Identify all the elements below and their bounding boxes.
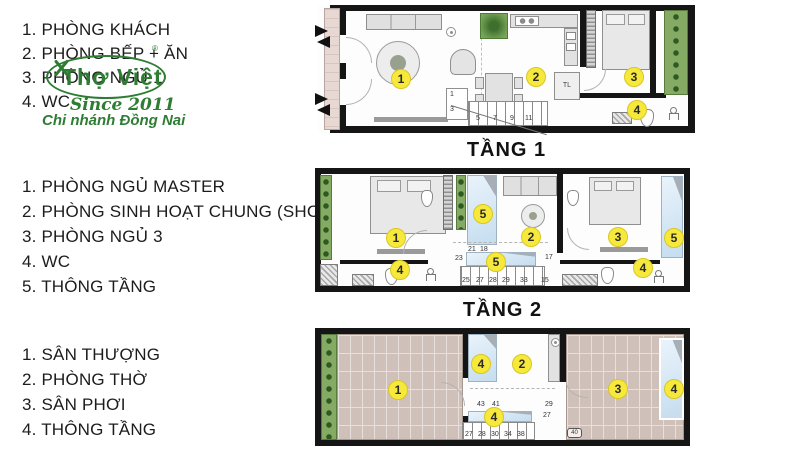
stair-number: 7 <box>493 115 497 123</box>
stair-number: 21 <box>468 246 476 254</box>
logo-name: Thợ Việt <box>62 64 163 91</box>
side-garden <box>664 10 688 95</box>
void-badge: 4 <box>664 379 684 399</box>
wall <box>340 5 346 35</box>
room-badge-dining: 2 <box>526 67 546 87</box>
stair-number: 34 <box>504 431 512 439</box>
vanity <box>562 274 598 286</box>
stair-number: 17 <box>545 254 553 262</box>
sink-icon <box>566 32 576 40</box>
wall <box>340 260 428 264</box>
legend-floor2-item-5: 5. THÔNG TẦNG <box>22 274 325 299</box>
stair-number: 15 <box>541 277 549 285</box>
room-badge-laundry: 3 <box>608 379 628 399</box>
void-badge: 4 <box>484 407 504 427</box>
wardrobe <box>443 175 453 230</box>
door-arc <box>346 37 372 63</box>
shower-icon <box>425 268 435 282</box>
void-badge: 5 <box>664 228 684 248</box>
shower-icon <box>668 107 678 121</box>
chair <box>514 77 523 89</box>
room-badge-altar: 2 <box>512 354 532 374</box>
wall <box>315 168 690 174</box>
legend-floor2-item-3: 3. PHÒNG NGỦ 3 <box>22 224 325 249</box>
shower-icon <box>653 270 663 284</box>
chair <box>475 77 484 89</box>
logo-branch: Chi nhánh Đồng Nai <box>42 112 185 129</box>
wall <box>340 63 346 79</box>
floor-plan-1: 1 TL 2 1 3 5 7 9 11 3 4 <box>318 5 695 133</box>
round-rug <box>521 204 545 228</box>
room-badge-bedroom3: 3 <box>608 227 628 247</box>
room-badge-wc: 4 <box>627 100 647 120</box>
door-arc <box>346 79 372 105</box>
pillow <box>606 14 625 25</box>
toilet-icon <box>567 190 579 206</box>
plant-icon <box>529 212 538 221</box>
wall <box>684 328 690 446</box>
legend-floor1-item-1: 1. PHÒNG KHÁCH <box>22 18 188 42</box>
legend-floor2: 1. PHÒNG NGỦ MASTER 2. PHÒNG SINH HOẠT C… <box>22 174 325 299</box>
room-badge-wc-left: 4 <box>390 260 410 280</box>
floor-plan-2: 1 5 2 3 5 4 23 21 18 17 5 25 27 28 29 33… <box>315 168 690 292</box>
registered-mark-icon: ® <box>152 44 158 53</box>
door-arc <box>567 228 589 250</box>
planter <box>321 334 337 440</box>
bed <box>589 177 641 225</box>
stair-number: 18 <box>480 246 488 254</box>
legend-floor3-item-4: 4. THÔNG TẦNG <box>22 417 160 442</box>
floor-lamp-icon <box>446 27 456 37</box>
stair-number: 3 <box>450 106 454 114</box>
stair-number: 5 <box>476 115 480 123</box>
stair-number: 38 <box>517 431 525 439</box>
stove-icon <box>515 16 539 26</box>
room-badge-terrace: 1 <box>388 380 408 400</box>
legend-floor2-item-4: 4. WC <box>22 249 325 274</box>
bed <box>602 10 650 70</box>
wall <box>340 105 346 133</box>
dresser <box>600 247 648 252</box>
plant-icon <box>480 13 508 39</box>
wall <box>557 168 563 253</box>
room-badge-wc-right: 4 <box>633 258 653 278</box>
gate-symbol-icon <box>314 93 330 117</box>
gate-symbol-icon <box>314 25 330 49</box>
pillow <box>377 180 401 192</box>
planter <box>320 175 332 260</box>
tv-cabinet <box>374 117 448 122</box>
stair-number: 28 <box>489 277 497 285</box>
legend-floor3-item-3: 3. SÂN PHƠI <box>22 392 160 417</box>
stair-number: 30 <box>491 431 499 439</box>
stair-number: 27 <box>476 277 484 285</box>
stair-number: 43 <box>477 401 485 409</box>
wall <box>315 286 690 292</box>
washer <box>352 274 374 286</box>
wardrobe <box>586 10 596 68</box>
wall <box>688 5 695 133</box>
void-badge: 5 <box>473 204 493 224</box>
stair-number: 29 <box>545 401 553 409</box>
void-badge: 5 <box>486 252 506 272</box>
pillow <box>616 181 634 191</box>
sofa <box>503 176 557 196</box>
fridge: TL <box>554 72 580 100</box>
room-badge-living: 1 <box>391 69 411 89</box>
legend-floor2-item-1: 1. PHÒNG NGỦ MASTER <box>22 174 325 199</box>
stair-number: 23 <box>455 255 463 263</box>
legend-floor3-item-2: 2. PHÒNG THỜ <box>22 367 160 392</box>
door-arc <box>584 69 606 91</box>
stair-number: 1 <box>450 91 454 99</box>
floorplan-sheet: { "logo": { "name": "Thợ Việt", "reg": "… <box>0 0 800 450</box>
fan-icon <box>551 338 560 347</box>
stair-number: 11 <box>525 115 532 123</box>
wall <box>330 126 695 133</box>
planter <box>456 175 466 230</box>
stair-number: 27 <box>465 431 473 439</box>
wall <box>684 168 690 292</box>
void-badge: 4 <box>471 354 491 374</box>
floor-plan-3: 1 4 2 3 4 40 43 41 29 27 4 27 28 30 34 3… <box>315 328 690 446</box>
sofa <box>366 14 442 30</box>
legend-floor3-item-1: 1. SÂN THƯỢNG <box>22 342 160 367</box>
pillow <box>594 181 612 191</box>
floor1-label: TẦNG 1 <box>318 139 695 162</box>
bed <box>370 176 446 234</box>
wall <box>315 440 690 446</box>
pillow <box>628 14 645 25</box>
floor2-label: TẦNG 2 <box>315 299 690 322</box>
stair-number: 25 <box>462 277 470 285</box>
toilet-icon <box>601 267 614 284</box>
sink-icon <box>566 43 576 51</box>
legend-floor2-item-2: 2. PHÒNG SINH HOẠT CHUNG (SHC) <box>22 199 325 224</box>
stair-number: 27 <box>543 412 551 420</box>
armchair <box>450 49 476 75</box>
wall <box>650 5 656 95</box>
stair-number: 28 <box>478 431 486 439</box>
stair-number: 9 <box>510 115 514 123</box>
corner-tag: 40 <box>567 428 582 438</box>
room-badge-master: 1 <box>386 228 406 248</box>
room-badge-shc: 2 <box>521 227 541 247</box>
room-badge-bedroom1: 3 <box>624 67 644 87</box>
railing <box>470 388 555 389</box>
stair-number: 33 <box>520 277 528 285</box>
ledge <box>320 264 338 286</box>
legend-floor3: 1. SÂN THƯỢNG 2. PHÒNG THỜ 3. SÂN PHƠI 4… <box>22 342 160 442</box>
stair-number: 29 <box>502 277 510 285</box>
